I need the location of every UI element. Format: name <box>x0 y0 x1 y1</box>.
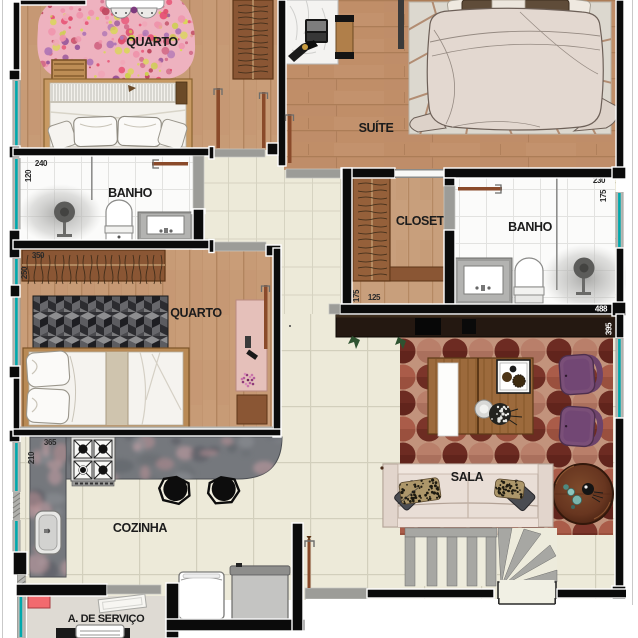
svg-text:BANHO: BANHO <box>108 186 153 200</box>
svg-text:COZINHA: COZINHA <box>113 521 168 535</box>
svg-text:175: 175 <box>352 289 361 302</box>
svg-text:A. DE SERVIÇO: A. DE SERVIÇO <box>68 613 145 625</box>
svg-text:125: 125 <box>368 293 381 302</box>
svg-text:CLOSET: CLOSET <box>396 214 445 228</box>
svg-text:350: 350 <box>32 251 45 260</box>
svg-text:365: 365 <box>44 438 57 447</box>
svg-text:BANHO: BANHO <box>508 220 553 234</box>
svg-text:210: 210 <box>27 451 36 464</box>
svg-text:SALA: SALA <box>451 470 484 484</box>
svg-text:250: 250 <box>20 266 29 279</box>
svg-text:488: 488 <box>595 305 608 314</box>
svg-text:QUARTO: QUARTO <box>126 35 178 49</box>
svg-text:395: 395 <box>605 322 614 335</box>
svg-text:120: 120 <box>24 169 33 182</box>
svg-text:SUÍTE: SUÍTE <box>359 120 394 135</box>
svg-text:240: 240 <box>35 159 48 168</box>
svg-text:QUARTO: QUARTO <box>170 306 222 320</box>
svg-text:175: 175 <box>599 189 608 202</box>
